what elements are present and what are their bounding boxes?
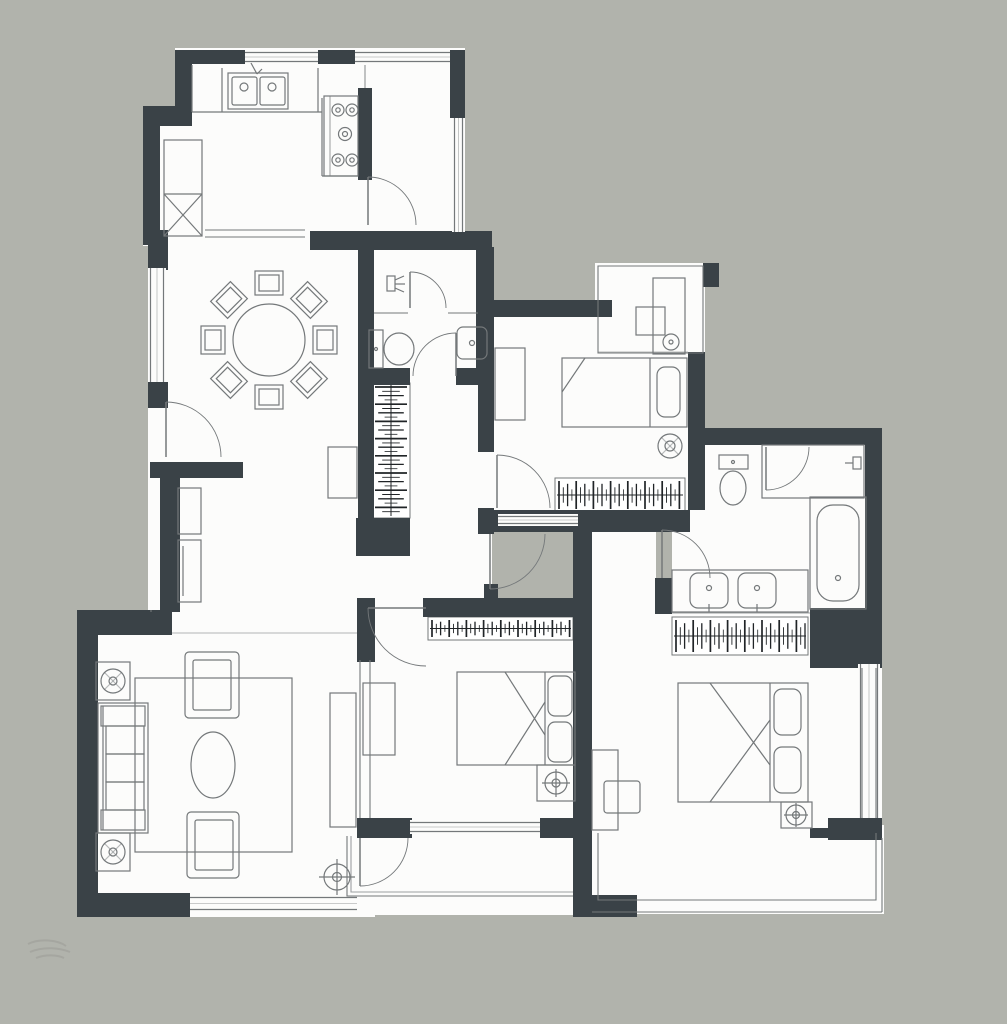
floor-kitchen [175,48,465,245]
floorplan-page [0,0,1007,1024]
kitchen-window-left [245,50,318,64]
bedroom-1-wardrobe [428,617,573,640]
living-window [190,895,357,912]
floorplan-svg [0,0,1007,1024]
hall-closet [372,383,410,518]
floor-balcony-1 [345,825,592,915]
pantry-window [452,118,465,232]
master-wardrobe [672,617,808,655]
kitchen-window-right [355,50,450,64]
bay-right-window [858,664,880,818]
dining-window [148,268,166,382]
bedroom-2-wardrobe [555,478,685,512]
bedroom-1-window [410,820,540,834]
bedroom-2-wall-slot [498,514,578,526]
